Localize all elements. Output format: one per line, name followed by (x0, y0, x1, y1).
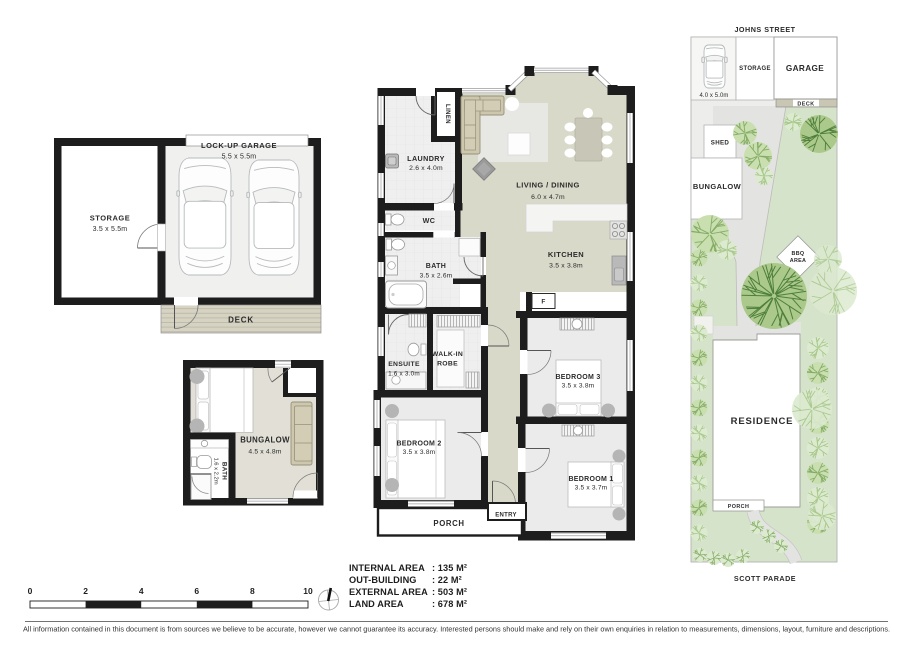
svg-text:4.0 x 5.0m: 4.0 x 5.0m (699, 93, 728, 99)
svg-text:2: 2 (83, 586, 88, 596)
svg-text:: 678 M²: : 678 M² (432, 599, 467, 609)
svg-text:LIVING / DINING: LIVING / DINING (516, 181, 580, 190)
svg-text:BATH: BATH (426, 263, 447, 270)
svg-text:DECK: DECK (228, 316, 254, 325)
svg-text:ROBE: ROBE (437, 361, 458, 368)
svg-text:INTERNAL AREA: INTERNAL AREA (349, 563, 425, 573)
svg-text:BEDROOM 2: BEDROOM 2 (396, 441, 441, 448)
svg-text:3.5 x 5.5m: 3.5 x 5.5m (93, 226, 128, 233)
svg-text:1.6 x 2.2m: 1.6 x 2.2m (213, 457, 219, 484)
svg-text:WC: WC (423, 216, 436, 225)
svg-text:LAND AREA: LAND AREA (349, 599, 404, 609)
svg-text:ENSUITE: ENSUITE (388, 361, 420, 368)
svg-text:BUNGALOW: BUNGALOW (693, 182, 742, 191)
svg-text:4: 4 (139, 586, 144, 596)
svg-text:GARAGE: GARAGE (786, 64, 824, 73)
svg-text:AREA: AREA (790, 258, 806, 264)
svg-text:8: 8 (250, 586, 255, 596)
svg-text:PORCH: PORCH (728, 504, 749, 510)
svg-text:ENTRY: ENTRY (495, 513, 517, 519)
svg-text:LAUNDRY: LAUNDRY (407, 154, 445, 163)
svg-text:F: F (541, 299, 545, 306)
svg-text:3.5 x 3.7m: 3.5 x 3.7m (575, 485, 608, 492)
svg-text:5.5 x 5.5m: 5.5 x 5.5m (222, 154, 257, 161)
svg-text:STORAGE: STORAGE (90, 214, 130, 223)
svg-text:KITCHEN: KITCHEN (548, 250, 584, 259)
svg-text:DECK: DECK (797, 101, 814, 107)
svg-text:: 22 M²: : 22 M² (432, 575, 462, 585)
svg-text:BBQ: BBQ (792, 251, 805, 257)
svg-text:SHED: SHED (711, 140, 730, 147)
svg-text:3.5 x 2.6m: 3.5 x 2.6m (420, 273, 453, 280)
svg-text:: 503 M²: : 503 M² (432, 587, 467, 597)
svg-text:3.5 x 3.8m: 3.5 x 3.8m (403, 449, 436, 456)
svg-text:SCOTT PARADE: SCOTT PARADE (734, 574, 796, 583)
svg-text:STORAGE: STORAGE (739, 66, 771, 72)
svg-text:4.5 x 4.8m: 4.5 x 4.8m (248, 449, 281, 456)
svg-text:OUT-BUILDING: OUT-BUILDING (349, 575, 417, 585)
svg-text:2.6 x 4.0m: 2.6 x 4.0m (409, 165, 443, 172)
svg-text:3.5 x 3.8m: 3.5 x 3.8m (549, 263, 583, 270)
svg-text:10: 10 (303, 586, 313, 596)
svg-text:BATH: BATH (221, 462, 228, 480)
svg-text:LINEN: LINEN (444, 104, 450, 124)
svg-text:BEDROOM 3: BEDROOM 3 (555, 374, 600, 381)
svg-text:3.5 x 3.8m: 3.5 x 3.8m (562, 383, 595, 390)
svg-text:BUNGALOW: BUNGALOW (240, 436, 290, 445)
svg-text:BEDROOM 1: BEDROOM 1 (568, 476, 613, 483)
svg-text:All information contained in t: All information contained in this docume… (23, 625, 890, 634)
svg-text:WALK-IN: WALK-IN (432, 351, 463, 358)
svg-text:RESIDENCE: RESIDENCE (731, 416, 794, 427)
svg-text:PORCH: PORCH (433, 519, 464, 528)
svg-text:6: 6 (194, 586, 199, 596)
svg-text:: 135 M²: : 135 M² (432, 563, 467, 573)
svg-text:0: 0 (28, 586, 33, 596)
svg-text:JOHNS STREET: JOHNS STREET (734, 25, 795, 34)
svg-text:EXTERNAL AREA: EXTERNAL AREA (349, 587, 428, 597)
svg-text:6.0 x 4.7m: 6.0 x 4.7m (531, 194, 565, 201)
svg-text:LOCK-UP GARAGE: LOCK-UP GARAGE (201, 141, 277, 150)
svg-text:1.6 x 3.0m: 1.6 x 3.0m (388, 371, 420, 378)
